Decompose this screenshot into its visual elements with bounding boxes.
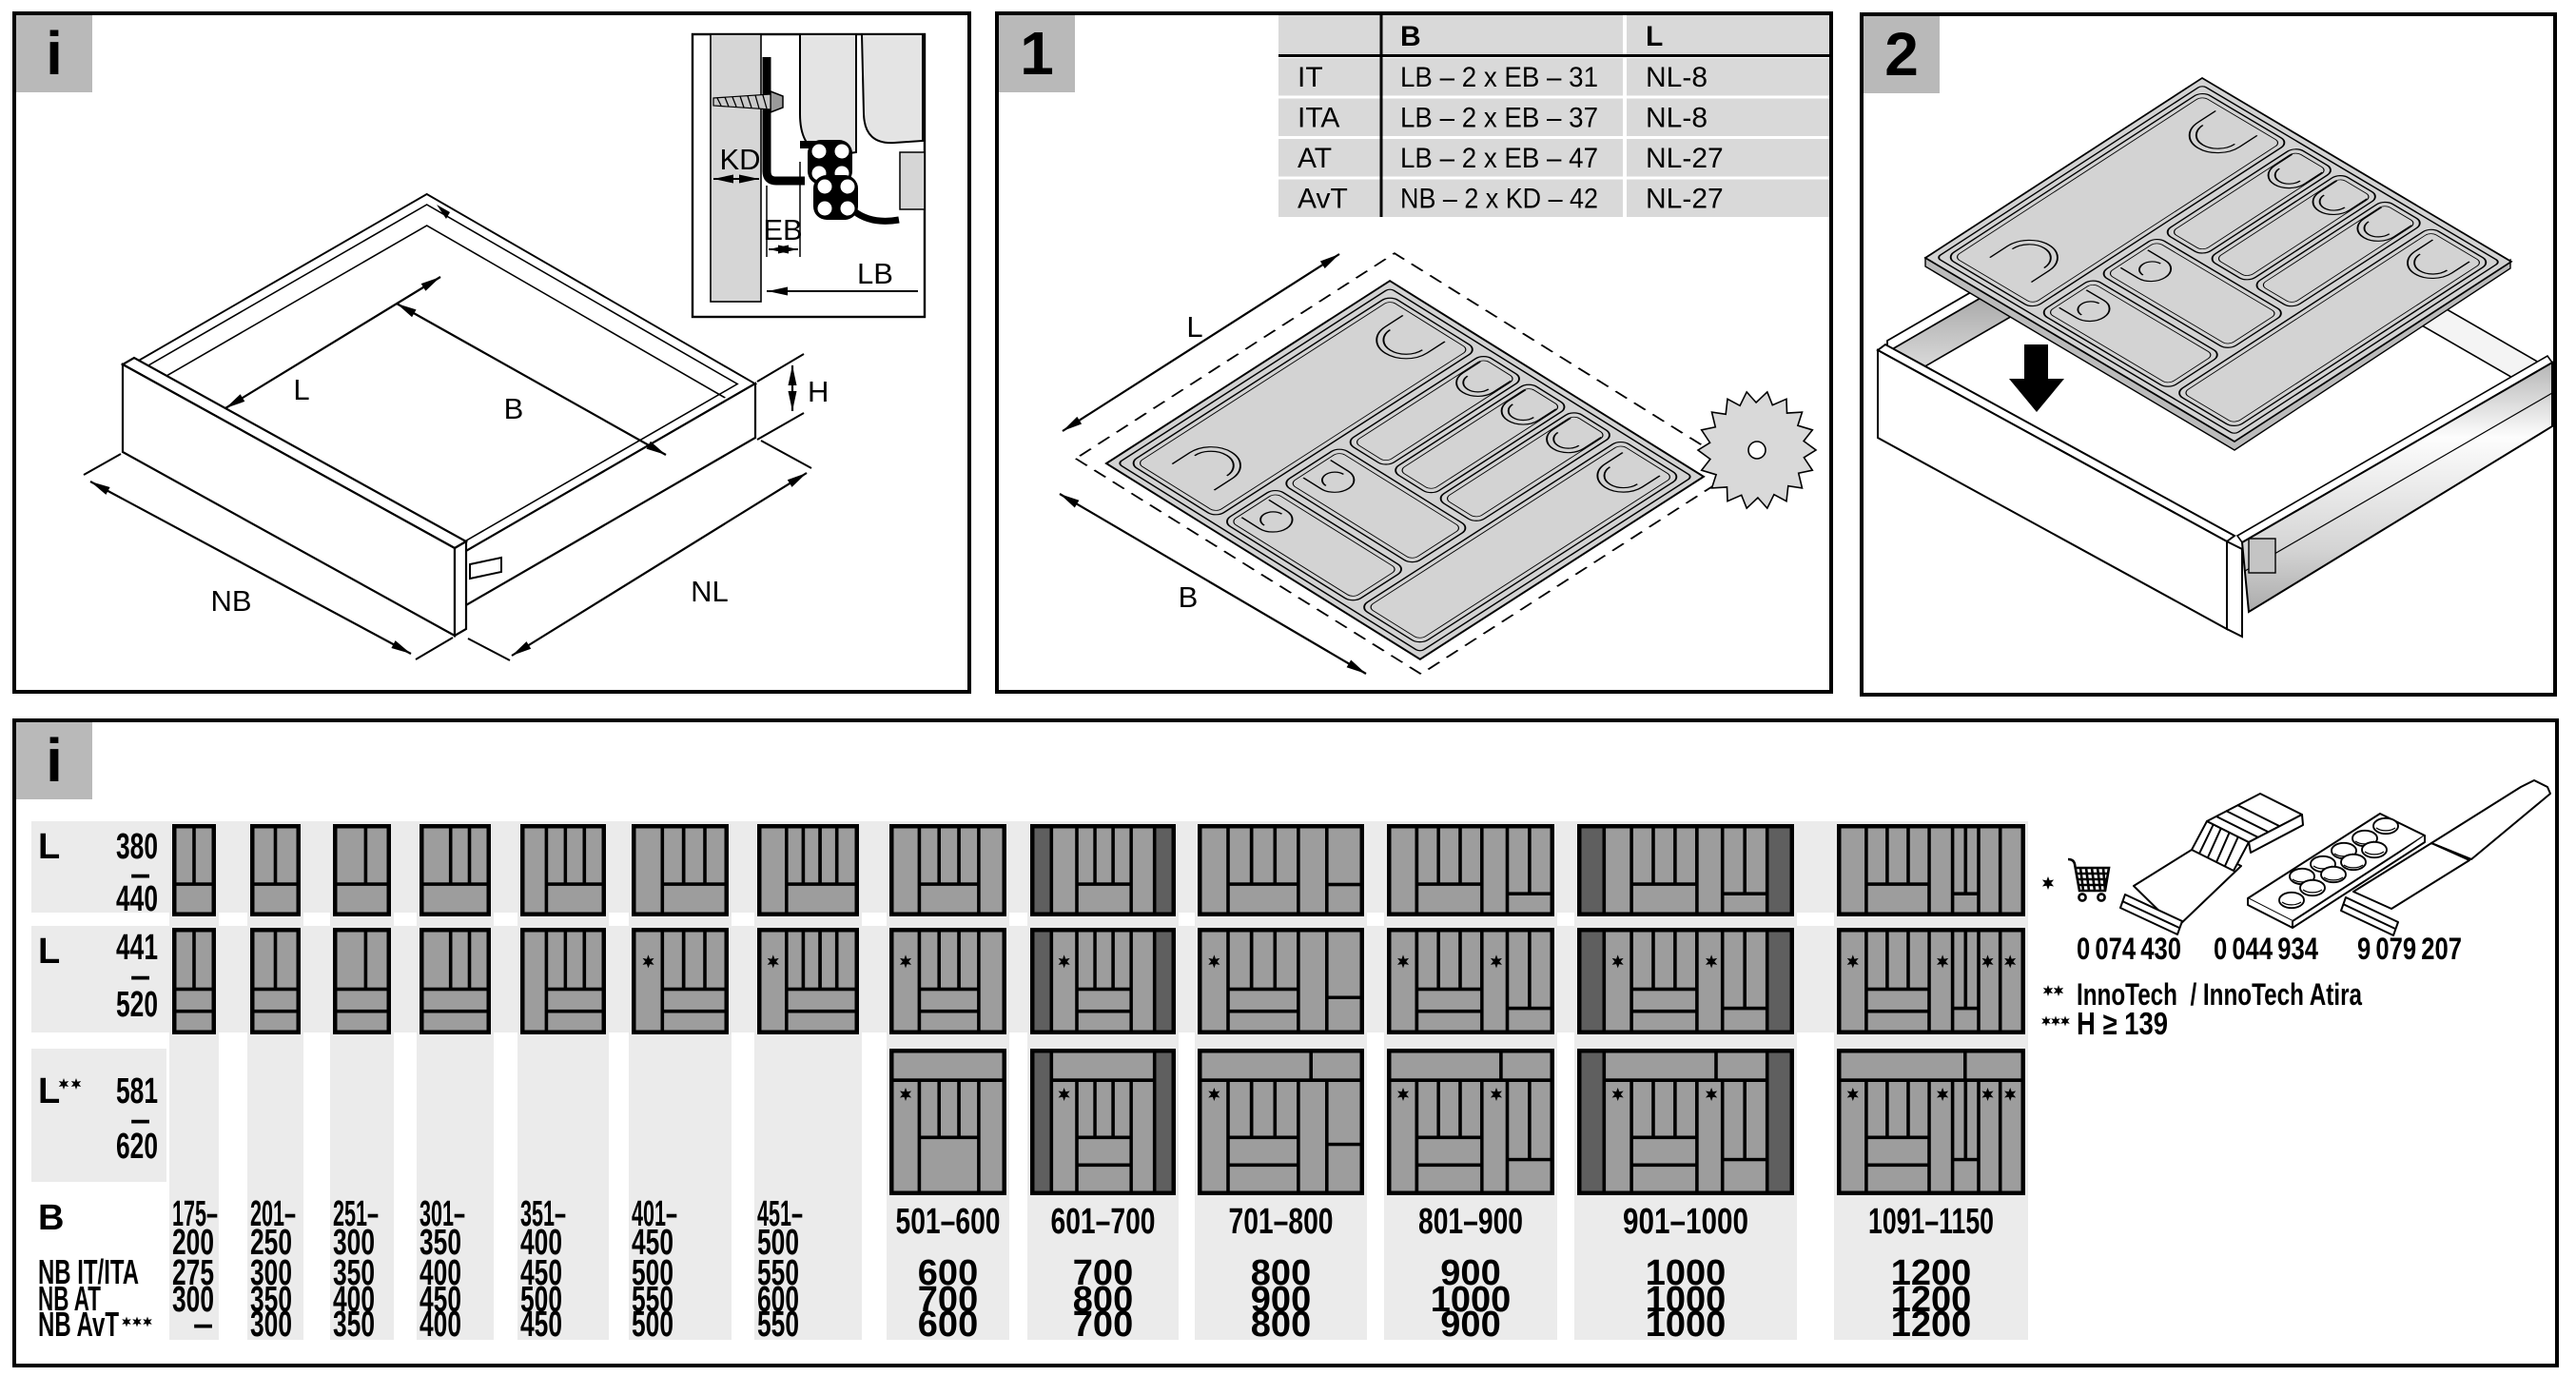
svg-text:–: –	[193, 1305, 213, 1345]
svg-text:450: 450	[520, 1305, 562, 1345]
svg-text:NL: NL	[691, 575, 729, 608]
svg-text:901–1000: 901–1000	[1623, 1202, 1748, 1242]
svg-text:LB – 2 x EB – 47: LB – 2 x EB – 47	[1400, 143, 1598, 174]
svg-text:0 044 934: 0 044 934	[2214, 932, 2318, 966]
svg-text:2: 2	[1884, 20, 1919, 88]
svg-text:B: B	[504, 392, 524, 425]
svg-text:L: L	[1646, 21, 1663, 52]
svg-text:LB: LB	[857, 257, 893, 290]
svg-text:AT: AT	[1298, 143, 1332, 174]
svg-text:701–800: 701–800	[1229, 1202, 1334, 1242]
svg-text:801–900: 801–900	[1418, 1202, 1523, 1242]
svg-text:i: i	[46, 726, 63, 795]
svg-text:NB AvT: NB AvT	[38, 1305, 119, 1344]
svg-text:1200: 1200	[1891, 1305, 1972, 1345]
svg-text:NL-8: NL-8	[1646, 103, 1708, 134]
svg-text:B: B	[1400, 21, 1421, 52]
svg-text:B: B	[38, 1198, 64, 1238]
svg-text:1000: 1000	[1646, 1305, 1727, 1345]
svg-text:L: L	[293, 373, 309, 406]
svg-text:NL-27: NL-27	[1646, 184, 1724, 215]
svg-text:LB – 2 x EB – 31: LB – 2 x EB – 31	[1400, 62, 1598, 93]
svg-text:1: 1	[1020, 19, 1054, 88]
svg-text:501–600: 501–600	[896, 1202, 1001, 1242]
svg-text:NB – 2 x KD – 42: NB – 2 x KD – 42	[1400, 184, 1598, 215]
svg-text:L: L	[38, 1071, 60, 1111]
svg-text:700: 700	[1073, 1305, 1133, 1345]
svg-text:9 079 207: 9 079 207	[2357, 932, 2462, 966]
svg-text:L: L	[38, 932, 60, 972]
svg-text:EB: EB	[763, 213, 802, 246]
svg-text:900: 900	[1440, 1305, 1500, 1345]
svg-text:400: 400	[420, 1305, 461, 1345]
svg-text:LB – 2 x EB – 37: LB – 2 x EB – 37	[1400, 103, 1598, 134]
svg-text:IT: IT	[1298, 62, 1323, 93]
svg-text:H: H	[808, 375, 829, 408]
svg-text:800: 800	[1251, 1305, 1311, 1345]
svg-text:L: L	[38, 827, 60, 867]
svg-text:L: L	[1186, 310, 1202, 344]
svg-text:H ≥ 139: H ≥ 139	[2077, 1006, 2168, 1041]
svg-text:AvT: AvT	[1298, 184, 1348, 215]
svg-text:NL-27: NL-27	[1646, 143, 1724, 174]
svg-text:i: i	[46, 19, 63, 88]
svg-text:440: 440	[116, 879, 158, 919]
svg-text:600: 600	[918, 1305, 978, 1345]
svg-text:NL-8: NL-8	[1646, 62, 1708, 93]
svg-text:500: 500	[632, 1305, 673, 1345]
svg-text:KD: KD	[719, 143, 760, 176]
svg-text:550: 550	[757, 1305, 799, 1345]
svg-text:350: 350	[333, 1305, 375, 1345]
svg-text:620: 620	[116, 1127, 158, 1167]
svg-text:520: 520	[116, 985, 158, 1025]
svg-text:0 074 430: 0 074 430	[2077, 932, 2181, 966]
svg-text:NB: NB	[210, 584, 251, 618]
svg-text:300: 300	[250, 1305, 292, 1345]
svg-text:601–700: 601–700	[1051, 1202, 1156, 1242]
svg-text:ITA: ITA	[1298, 103, 1339, 134]
svg-text:B: B	[1179, 580, 1199, 614]
svg-text:1091–1150: 1091–1150	[1868, 1202, 1994, 1242]
